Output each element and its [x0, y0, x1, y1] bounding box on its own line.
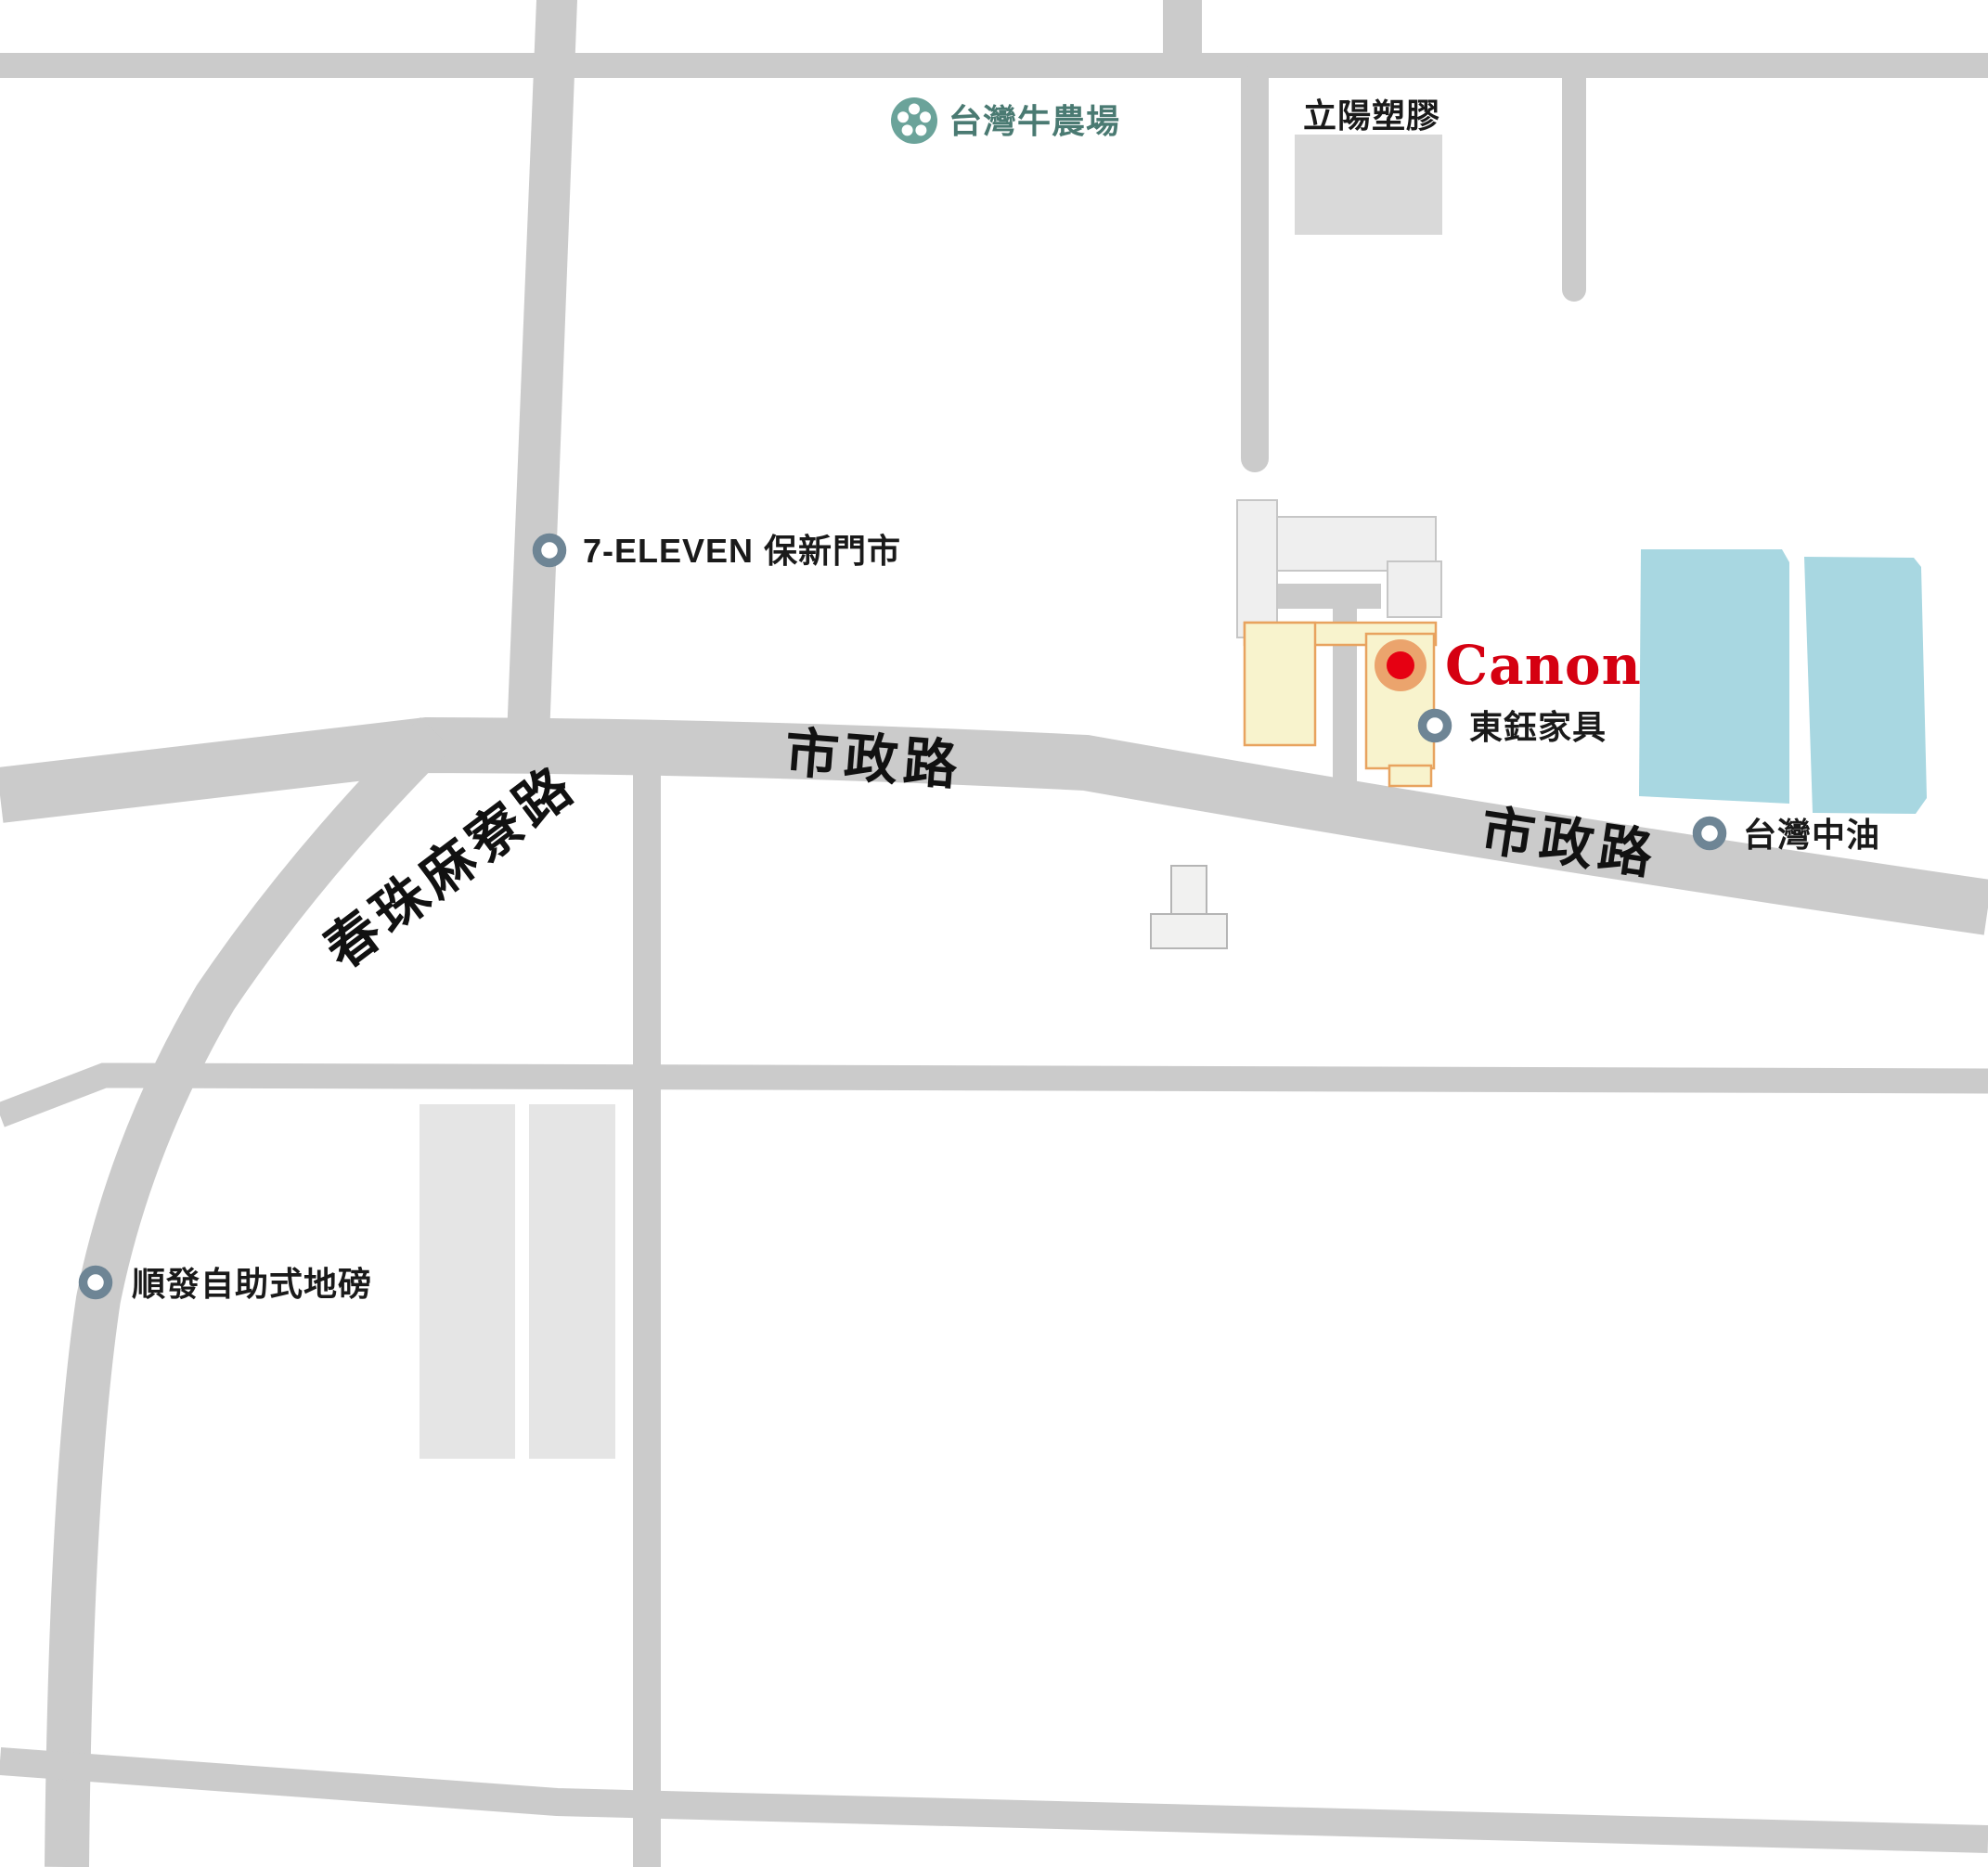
dongyu-label[interactable]: 東鈺家具 — [1469, 708, 1607, 746]
farm-label[interactable]: 台灣牛農場 — [949, 102, 1120, 140]
seven-eleven-marker[interactable] — [537, 538, 562, 563]
road-top-horizontal — [0, 53, 1988, 78]
dongyu-marker[interactable] — [1423, 714, 1448, 739]
labels: 台灣牛農場 立陽塑膠 7-ELEVEN 保新門市 Canon 東鈺家具 台灣中油… — [132, 97, 1880, 1303]
cpc-label[interactable]: 台灣中油 — [1743, 816, 1880, 854]
shunfa-marker[interactable] — [84, 1270, 109, 1295]
road-label-shizheng-west: 市政路 — [782, 723, 965, 797]
farm-flower-icon[interactable] — [891, 97, 937, 144]
building-canon-south-tab — [1389, 766, 1431, 786]
farm-icon-dot — [909, 104, 920, 115]
building-warehouse-left — [420, 1104, 515, 1459]
road-lower-horizontal — [0, 1075, 1988, 1115]
farm-icon-dot — [920, 111, 931, 122]
seven-eleven-label[interactable]: 7-ELEVEN 保新門市 — [583, 532, 901, 570]
map-canvas: 台灣牛農場 立陽塑膠 7-ELEVEN 保新門市 Canon 東鈺家具 台灣中油… — [0, 0, 1988, 1867]
building-warehouse-right — [529, 1104, 615, 1459]
farm-icon-dot — [902, 124, 913, 135]
cpc-marker[interactable] — [1698, 821, 1723, 846]
shunfa-label[interactable]: 順發自助式地磅 — [132, 1265, 372, 1303]
building-factory-west-wing — [1237, 500, 1277, 637]
road-network — [0, 0, 1988, 1867]
canon-logo[interactable]: Canon — [1445, 634, 1642, 697]
driveway-horizontal — [1277, 584, 1381, 609]
building-small-base — [1151, 914, 1227, 948]
canon-marker-dot — [1387, 651, 1414, 679]
road-label-shizheng-east: 市政路 — [1477, 800, 1662, 886]
liyang-label[interactable]: 立陽塑膠 — [1303, 97, 1440, 135]
canon-marker[interactable] — [1375, 639, 1426, 691]
building-blue-west — [1639, 549, 1789, 804]
road-stub-above-top — [1163, 0, 1202, 56]
building-canon-west-block — [1245, 623, 1315, 745]
building-liyang — [1295, 135, 1442, 235]
building-blue-east — [1804, 557, 1927, 814]
building-factory-annex — [1388, 561, 1441, 617]
farm-icon-dot — [915, 124, 926, 135]
road-bottom-horizontal — [0, 1761, 1988, 1839]
farm-icon-dot — [897, 111, 909, 122]
road-vertical-west — [507, 0, 577, 738]
